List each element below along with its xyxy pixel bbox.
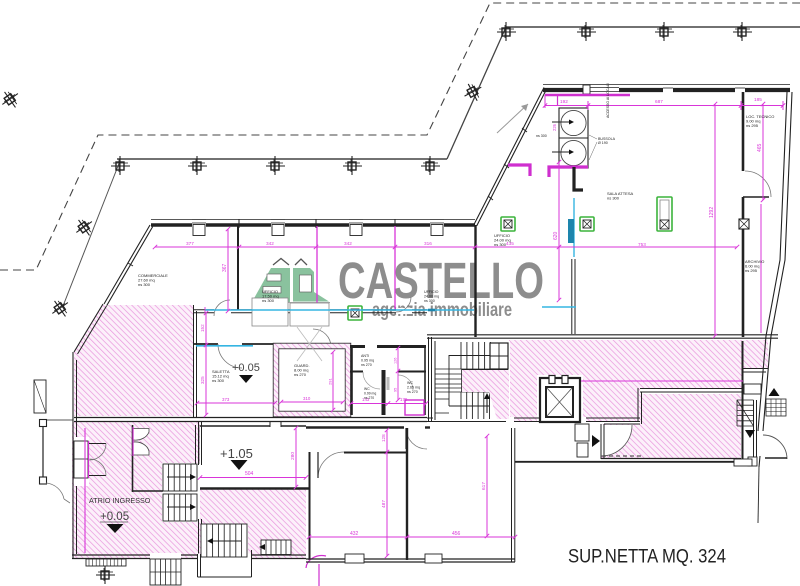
svg-text:179: 179: [400, 397, 408, 402]
svg-text:342: 342: [344, 241, 352, 246]
svg-text:487: 487: [381, 500, 387, 508]
svg-text:95: 95: [394, 388, 398, 392]
svg-text:620: 620: [553, 231, 559, 240]
svg-text:0.99 mq: 0.99 mq: [364, 392, 376, 396]
svg-text:ns 300: ns 300: [607, 196, 620, 201]
svg-text:617: 617: [481, 482, 487, 490]
svg-text:+0.05: +0.05: [232, 362, 260, 374]
svg-text:Ø 190: Ø 190: [598, 141, 608, 145]
svg-text:WC: WC: [407, 381, 413, 385]
svg-text:2.65 mq: 2.65 mq: [407, 386, 420, 390]
svg-text:185: 185: [754, 97, 762, 102]
svg-text:ns 270: ns 270: [361, 363, 372, 367]
svg-text:377: 377: [186, 241, 194, 246]
svg-text:+0.05: +0.05: [100, 511, 129, 523]
svg-text:ns 295: ns 295: [745, 268, 758, 273]
svg-text:ANTI: ANTI: [361, 354, 369, 358]
svg-text:24.00 mq: 24.00 mq: [424, 295, 439, 299]
svg-text:152: 152: [200, 324, 205, 332]
svg-text:456: 456: [452, 531, 461, 537]
svg-text:ns 295: ns 295: [746, 123, 759, 128]
svg-text:226: 226: [552, 123, 557, 131]
svg-text:ns 300: ns 300: [262, 298, 275, 303]
svg-text:1292: 1292: [709, 207, 715, 218]
svg-text:325: 325: [200, 376, 205, 384]
svg-text:342: 342: [266, 241, 274, 246]
svg-text:432: 432: [350, 531, 359, 537]
svg-text:192: 192: [560, 99, 568, 104]
svg-text:280: 280: [290, 452, 296, 460]
svg-text:310: 310: [303, 396, 311, 401]
svg-text:126: 126: [394, 358, 398, 364]
svg-text:ns 270: ns 270: [407, 390, 418, 394]
svg-text:ns 300: ns 300: [212, 378, 225, 383]
svg-text:SUP.NETTA MQ. 324: SUP.NETTA MQ. 324: [568, 546, 726, 568]
svg-text:128: 128: [381, 434, 386, 442]
svg-text:WC: WC: [364, 387, 370, 391]
svg-text:ATRIO INGRESSO: ATRIO INGRESSO: [89, 496, 151, 505]
svg-text:291: 291: [328, 378, 333, 385]
svg-text:465: 465: [757, 143, 763, 152]
svg-text:ns 270: ns 270: [364, 396, 374, 400]
svg-text:ns 270: ns 270: [294, 372, 307, 377]
svg-text:687: 687: [655, 99, 663, 104]
svg-text:ns 300: ns 300: [424, 299, 435, 303]
svg-text:373: 373: [222, 397, 230, 402]
svg-text:ns 300: ns 300: [494, 242, 507, 247]
svg-text:367: 367: [222, 263, 228, 272]
svg-text:504: 504: [245, 471, 254, 477]
svg-text:ns 300: ns 300: [138, 282, 151, 287]
svg-text:+1.05: +1.05: [220, 446, 253, 461]
svg-text:0.95 mq: 0.95 mq: [361, 359, 374, 363]
svg-text:UFFICIO: UFFICIO: [424, 290, 439, 294]
svg-text:753: 753: [638, 242, 646, 247]
svg-text:ns 300: ns 300: [536, 134, 547, 138]
svg-text:316: 316: [424, 241, 432, 246]
svg-text:ACCESSO AI LOCALI: ACCESSO AI LOCALI: [606, 83, 610, 118]
